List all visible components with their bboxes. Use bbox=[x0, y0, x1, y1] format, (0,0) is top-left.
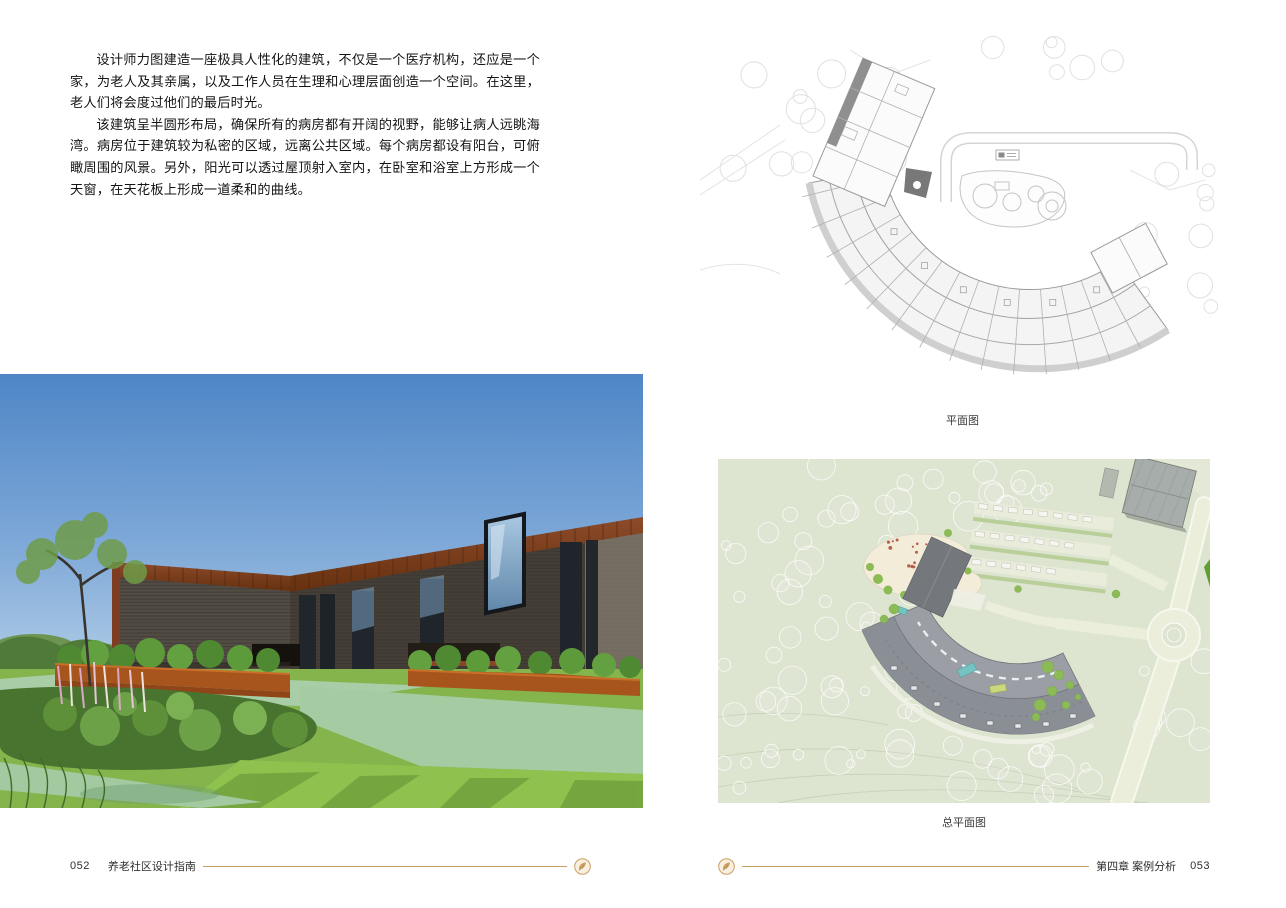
page-number-right: 053 bbox=[1190, 860, 1210, 872]
book-title: 养老社区设计指南 bbox=[108, 858, 196, 874]
plan-label-box bbox=[996, 150, 1019, 160]
floor-plan-figure bbox=[700, 30, 1225, 408]
site-plan-caption: 总平面图 bbox=[718, 814, 1210, 830]
leaf-medallion-icon bbox=[574, 858, 591, 875]
site-plan-figure bbox=[718, 459, 1210, 803]
footer-right: 第四章 案例分析 053 bbox=[718, 857, 1210, 875]
footer-left: 052 养老社区设计指南 bbox=[70, 857, 591, 875]
skylight-box bbox=[486, 514, 524, 613]
body-text: 设计师力图建造一座极具人性化的建筑，不仅是一个医疗机构，还应是一个家，为老人及其… bbox=[70, 49, 540, 200]
building-photo bbox=[0, 374, 643, 808]
paragraph-2: 该建筑呈半圆形布局，确保所有的病房都有开阔的视野，能够让病人远眺海湾。病房位于建… bbox=[70, 114, 540, 200]
building-photo-art bbox=[0, 374, 643, 808]
floor-plan-art bbox=[700, 30, 1225, 408]
paragraph-1: 设计师力图建造一座极具人性化的建筑，不仅是一个医疗机构，还应是一个家，为老人及其… bbox=[70, 49, 540, 114]
footer-rule-right bbox=[742, 866, 1089, 867]
leaf-medallion-icon bbox=[718, 858, 735, 875]
footer-rule-left bbox=[203, 866, 567, 867]
chapter-label: 第四章 案例分析 bbox=[1096, 858, 1176, 874]
page-number-left: 052 bbox=[70, 860, 90, 872]
site-plan-art bbox=[718, 459, 1210, 803]
floor-plan-caption: 平面图 bbox=[700, 412, 1225, 428]
book-spread: 设计师力图建造一座极具人性化的建筑，不仅是一个医疗机构，还应是一个家，为老人及其… bbox=[0, 0, 1286, 908]
